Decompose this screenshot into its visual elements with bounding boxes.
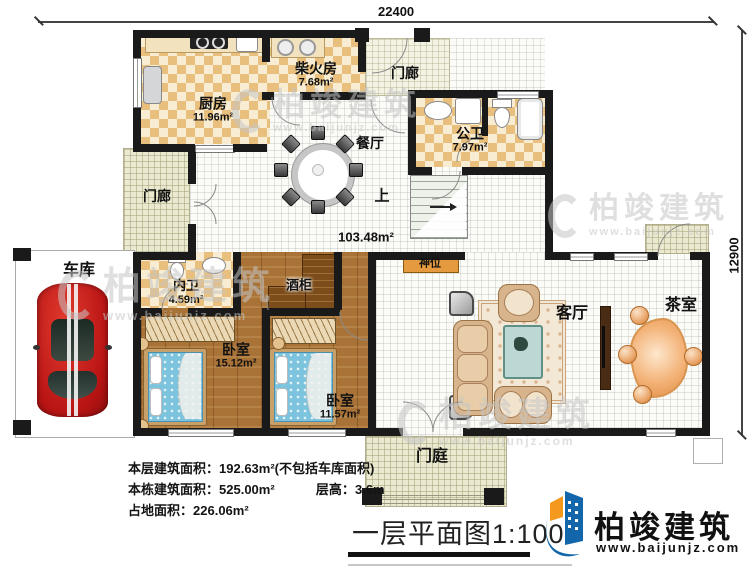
- brand-logo-icon: [538, 487, 590, 565]
- stats-line1-label: 本层建筑面积：: [128, 461, 219, 476]
- brand-url: www.baijunjz.com: [596, 540, 740, 555]
- kitchen-area: 11.96m²: [193, 112, 233, 125]
- stats-line2-label: 本栋建筑面积：: [128, 482, 219, 497]
- room-label-entry-court: 门庭: [416, 448, 448, 466]
- page-title: 一层平面图1:100: [352, 512, 565, 551]
- stats-line2: 本栋建筑面积：525.00m² 层高：3.6m: [128, 479, 385, 500]
- stats-line1-value: 192.63m²(不包括车库面积): [219, 461, 374, 476]
- room-label-ensuite: 内卫 4.59m²: [169, 279, 204, 307]
- room-label-bedroom2: 卧室 11.57m²: [320, 393, 360, 422]
- shrine-label: 神位: [419, 258, 441, 271]
- bedroom2-area: 11.57m²: [320, 409, 360, 422]
- stats-line2-value: 525.00m²: [219, 482, 275, 497]
- stats-line3-label: 占地面积：: [128, 503, 193, 518]
- room-label-living: 客厅: [556, 305, 588, 323]
- stats-line3: 占地面积：226.06m²: [128, 500, 385, 521]
- public-bath-name: 公卫: [456, 126, 484, 142]
- room-label-garage: 车库: [63, 262, 95, 280]
- bedroom1-area: 15.12m²: [216, 358, 257, 371]
- kitchen-name: 厨房: [199, 96, 227, 112]
- title-underline: [348, 552, 530, 557]
- dim-line-top: [38, 21, 714, 23]
- room-label-kitchen: 厨房 11.96m²: [193, 96, 233, 125]
- room-label-porch-left: 门廊: [143, 188, 171, 204]
- room-label-porch-top: 门廊: [391, 65, 419, 81]
- firewood-name: 柴火房: [295, 61, 337, 77]
- room-label-firewood: 柴火房 7.68m²: [295, 61, 337, 90]
- room-label-tea: 茶室: [665, 297, 697, 315]
- dim-label-right: 12900: [727, 234, 742, 278]
- dim-label-top: 22400: [378, 4, 414, 19]
- floor-plan-canvas: 厨房 11.96m² 柴火房 7.68m² 门廊 公卫 7.97m² 餐厅 上 …: [0, 0, 750, 572]
- ensuite-area: 4.59m²: [169, 294, 204, 307]
- stats-line1: 本层建筑面积：192.63m²(不包括车库面积): [128, 458, 385, 479]
- room-label-dining: 餐厅: [356, 135, 384, 151]
- stats-line2b-label: 层高：: [316, 482, 355, 497]
- ensuite-name: 内卫: [173, 278, 199, 293]
- stairs-up-label: 上: [374, 187, 389, 204]
- room-label-wine-cabinet: 酒柜: [286, 279, 312, 294]
- area-statistics: 本层建筑面积：192.63m²(不包括车库面积) 本栋建筑面积：525.00m²…: [128, 458, 385, 521]
- firewood-area: 7.68m²: [295, 77, 337, 90]
- hall-area-label: 103.48m²: [338, 231, 394, 246]
- room-label-public-bath: 公卫 7.97m²: [453, 126, 488, 155]
- stats-line3-value: 226.06m²: [193, 503, 249, 518]
- public-bath-area: 7.97m²: [453, 142, 488, 155]
- bedroom2-name: 卧室: [326, 393, 354, 409]
- bedroom1-name: 卧室: [222, 342, 250, 358]
- brand-logo: 柏竣建筑 www.baijunjz.com: [538, 487, 748, 567]
- room-label-bedroom1: 卧室 15.12m²: [216, 342, 257, 371]
- stats-line2b-value: 3.6m: [355, 482, 385, 497]
